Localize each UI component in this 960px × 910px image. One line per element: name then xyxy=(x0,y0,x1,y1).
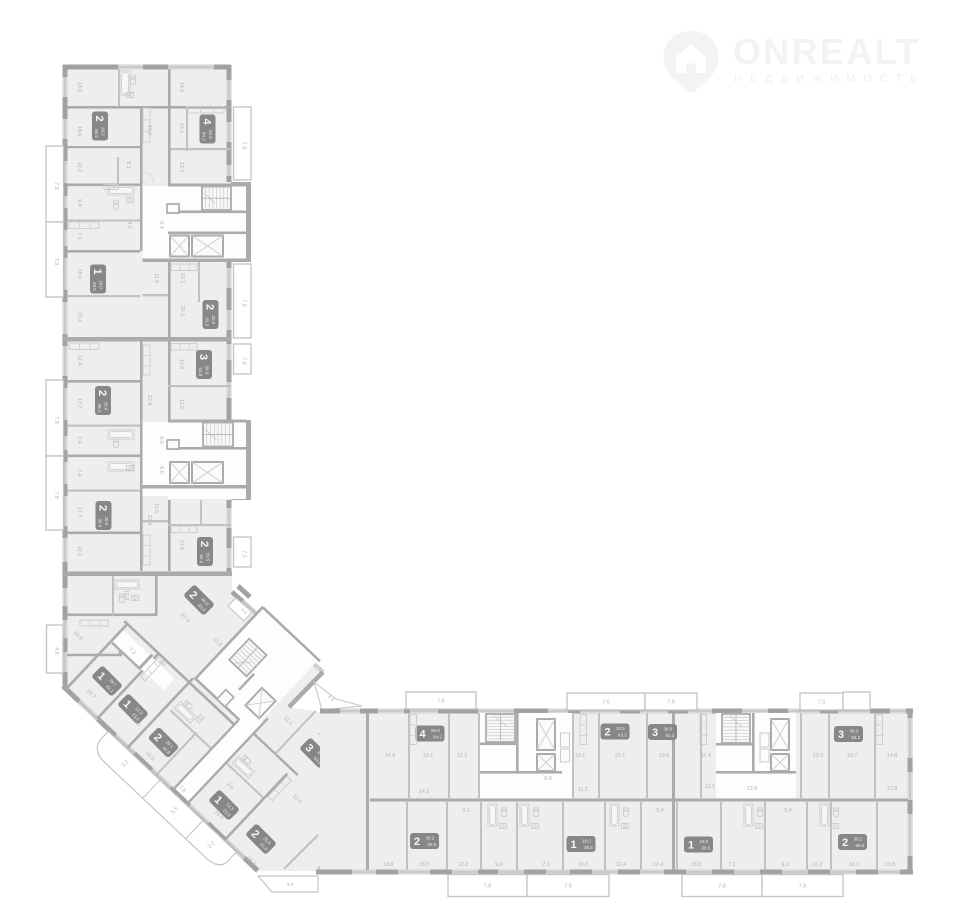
svg-text:4.0: 4.0 xyxy=(126,221,132,229)
svg-text:56.8: 56.8 xyxy=(431,728,440,733)
svg-text:9.1: 9.1 xyxy=(125,161,131,169)
svg-text:2: 2 xyxy=(414,836,420,848)
svg-text:2: 2 xyxy=(93,115,105,121)
svg-text:14.8: 14.8 xyxy=(385,753,396,759)
svg-text:12.2: 12.2 xyxy=(812,862,823,868)
svg-text:7.2: 7.2 xyxy=(728,862,736,868)
svg-text:12.8: 12.8 xyxy=(887,786,898,792)
svg-text:11.6: 11.6 xyxy=(153,503,159,513)
svg-text:3.5: 3.5 xyxy=(287,882,294,888)
svg-text:18.0: 18.0 xyxy=(849,862,860,868)
svg-text:3: 3 xyxy=(652,727,658,739)
svg-text:18.0: 18.0 xyxy=(99,280,104,289)
svg-text:4: 4 xyxy=(201,118,213,125)
svg-text:7.6: 7.6 xyxy=(437,699,445,705)
svg-text:11.6: 11.6 xyxy=(178,399,184,409)
svg-text:12.4: 12.4 xyxy=(616,862,627,868)
svg-text:20.1: 20.1 xyxy=(615,753,626,759)
svg-text:62.2: 62.2 xyxy=(199,555,204,564)
svg-text:17.6: 17.6 xyxy=(178,540,184,551)
svg-text:56.5: 56.5 xyxy=(856,843,865,848)
svg-text:20.9: 20.9 xyxy=(104,402,109,411)
svg-text:19.6: 19.6 xyxy=(659,753,670,759)
svg-text:4.6: 4.6 xyxy=(53,647,59,655)
svg-text:18.0: 18.0 xyxy=(76,269,82,280)
svg-text:14.6: 14.6 xyxy=(178,82,184,93)
svg-text:14.8: 14.8 xyxy=(887,753,898,759)
svg-text:12.4: 12.4 xyxy=(653,862,664,868)
svg-text:13.1: 13.1 xyxy=(457,753,468,759)
svg-text:38.5: 38.5 xyxy=(92,282,97,291)
svg-text:1: 1 xyxy=(570,839,576,851)
svg-text:5.4: 5.4 xyxy=(784,808,792,814)
svg-text:29.5: 29.5 xyxy=(206,553,211,562)
svg-text:10.3: 10.3 xyxy=(813,753,824,759)
svg-text:12.4: 12.4 xyxy=(76,355,82,366)
svg-text:63.3: 63.3 xyxy=(618,733,627,738)
svg-text:18.0: 18.0 xyxy=(582,838,591,843)
svg-text:48.2: 48.2 xyxy=(850,728,859,733)
svg-text:7.8: 7.8 xyxy=(799,884,807,890)
svg-text:12.4: 12.4 xyxy=(146,395,152,406)
svg-text:7.8: 7.8 xyxy=(564,884,572,890)
svg-text:1: 1 xyxy=(688,840,694,852)
svg-text:4: 4 xyxy=(419,729,426,741)
svg-text:17.7: 17.7 xyxy=(76,398,82,409)
svg-text:12.1: 12.1 xyxy=(76,546,82,557)
svg-text:7.1: 7.1 xyxy=(542,862,550,868)
svg-text:38.4: 38.4 xyxy=(98,519,103,528)
svg-text:10.1: 10.1 xyxy=(575,753,586,759)
svg-text:2: 2 xyxy=(604,727,610,739)
svg-text:7.8: 7.8 xyxy=(240,299,246,307)
svg-text:30.2: 30.2 xyxy=(426,835,435,840)
svg-text:12.2: 12.2 xyxy=(458,862,469,868)
svg-text:7.1: 7.1 xyxy=(76,232,82,240)
svg-text:11.4: 11.4 xyxy=(701,753,711,759)
svg-text:19.6: 19.6 xyxy=(178,359,184,370)
svg-text:18.6: 18.6 xyxy=(76,126,82,137)
svg-text:84.2: 84.2 xyxy=(202,132,207,141)
svg-text:7.4: 7.4 xyxy=(76,469,82,477)
svg-text:84.2: 84.2 xyxy=(433,735,442,740)
svg-text:30.2: 30.2 xyxy=(101,127,106,136)
svg-text:63.8: 63.8 xyxy=(198,368,203,377)
svg-text:7.8: 7.8 xyxy=(53,258,59,266)
svg-text:7.8: 7.8 xyxy=(240,357,246,365)
svg-text:ONREALT: ONREALT xyxy=(733,31,920,72)
svg-text:84.2: 84.2 xyxy=(852,735,861,740)
svg-text:56.5: 56.5 xyxy=(428,842,437,847)
svg-text:7.8: 7.8 xyxy=(240,142,246,150)
svg-text:9.1: 9.1 xyxy=(462,808,470,814)
svg-text:10.1: 10.1 xyxy=(179,273,185,284)
svg-text:6.0: 6.0 xyxy=(158,466,164,474)
svg-text:7.6: 7.6 xyxy=(667,700,675,706)
svg-text:7.5: 7.5 xyxy=(240,550,246,558)
svg-text:7.4: 7.4 xyxy=(76,436,82,444)
svg-text:20.1: 20.1 xyxy=(179,306,185,317)
svg-text:9.0: 9.0 xyxy=(781,862,789,868)
svg-text:93.3: 93.3 xyxy=(666,733,675,738)
svg-text:20.9: 20.9 xyxy=(104,517,109,526)
svg-text:38.0: 38.0 xyxy=(205,366,210,375)
svg-text:6.4: 6.4 xyxy=(158,221,164,229)
svg-text:14.2: 14.2 xyxy=(419,789,430,795)
svg-text:2: 2 xyxy=(198,541,210,547)
svg-text:13.6: 13.6 xyxy=(76,82,82,93)
svg-text:13.4: 13.4 xyxy=(76,312,82,323)
svg-text:11.1: 11.1 xyxy=(578,787,588,793)
svg-text:38.5: 38.5 xyxy=(702,846,711,851)
svg-text:18.0: 18.0 xyxy=(578,862,589,868)
svg-text:38.0: 38.0 xyxy=(664,726,673,731)
svg-text:7.8: 7.8 xyxy=(53,491,59,499)
svg-text:9.0: 9.0 xyxy=(495,862,503,868)
svg-text:2: 2 xyxy=(96,390,108,396)
svg-text:7.5: 7.5 xyxy=(818,700,826,706)
svg-text:7.8: 7.8 xyxy=(484,884,492,890)
svg-text:56.5: 56.5 xyxy=(94,129,99,138)
svg-text:63.3: 63.3 xyxy=(205,318,210,327)
svg-text:2: 2 xyxy=(842,837,848,849)
svg-text:17.7: 17.7 xyxy=(76,507,82,518)
svg-text:12.4: 12.4 xyxy=(146,515,152,526)
svg-text:30.2: 30.2 xyxy=(854,836,863,841)
svg-text:7.8: 7.8 xyxy=(718,884,726,890)
svg-text:12.8: 12.8 xyxy=(747,786,758,792)
svg-text:32.6: 32.6 xyxy=(616,726,625,731)
svg-text:14.2: 14.2 xyxy=(146,125,152,136)
svg-text:9.6: 9.6 xyxy=(76,199,82,207)
svg-text:7.6: 7.6 xyxy=(602,700,610,706)
svg-text:19.1: 19.1 xyxy=(423,753,434,759)
svg-text:38.5: 38.5 xyxy=(584,845,593,850)
svg-text:13.6: 13.6 xyxy=(885,862,896,868)
svg-text:11.1: 11.1 xyxy=(705,784,715,790)
svg-text:19.1: 19.1 xyxy=(178,123,184,134)
svg-text:2: 2 xyxy=(204,304,216,310)
svg-text:3: 3 xyxy=(197,354,209,360)
svg-text:1: 1 xyxy=(91,268,103,274)
svg-text:56.8: 56.8 xyxy=(208,130,213,139)
svg-text:12.2: 12.2 xyxy=(76,162,82,173)
svg-text:18.0: 18.0 xyxy=(419,862,430,868)
svg-text:3: 3 xyxy=(838,729,844,741)
svg-text:33.6: 33.6 xyxy=(211,316,216,325)
svg-text:38.4: 38.4 xyxy=(97,404,102,413)
svg-text:12.9: 12.9 xyxy=(123,590,129,601)
svg-text:2: 2 xyxy=(97,505,109,511)
svg-text:6.0: 6.0 xyxy=(158,436,164,444)
svg-text:13.8: 13.8 xyxy=(383,862,394,868)
svg-text:7.8: 7.8 xyxy=(53,416,59,424)
svg-text:11.8: 11.8 xyxy=(153,273,159,283)
svg-text:НЕДВИЖИМОСТЬ: НЕДВИЖИМОСТЬ xyxy=(734,73,925,85)
svg-text:19.7: 19.7 xyxy=(847,753,858,759)
svg-text:6.0: 6.0 xyxy=(544,776,552,782)
svg-text:5.4: 5.4 xyxy=(656,808,664,814)
svg-text:18.0: 18.0 xyxy=(691,862,702,868)
svg-text:18.0: 18.0 xyxy=(700,839,709,844)
svg-text:13.3: 13.3 xyxy=(178,162,184,173)
svg-text:7.8: 7.8 xyxy=(53,182,59,190)
